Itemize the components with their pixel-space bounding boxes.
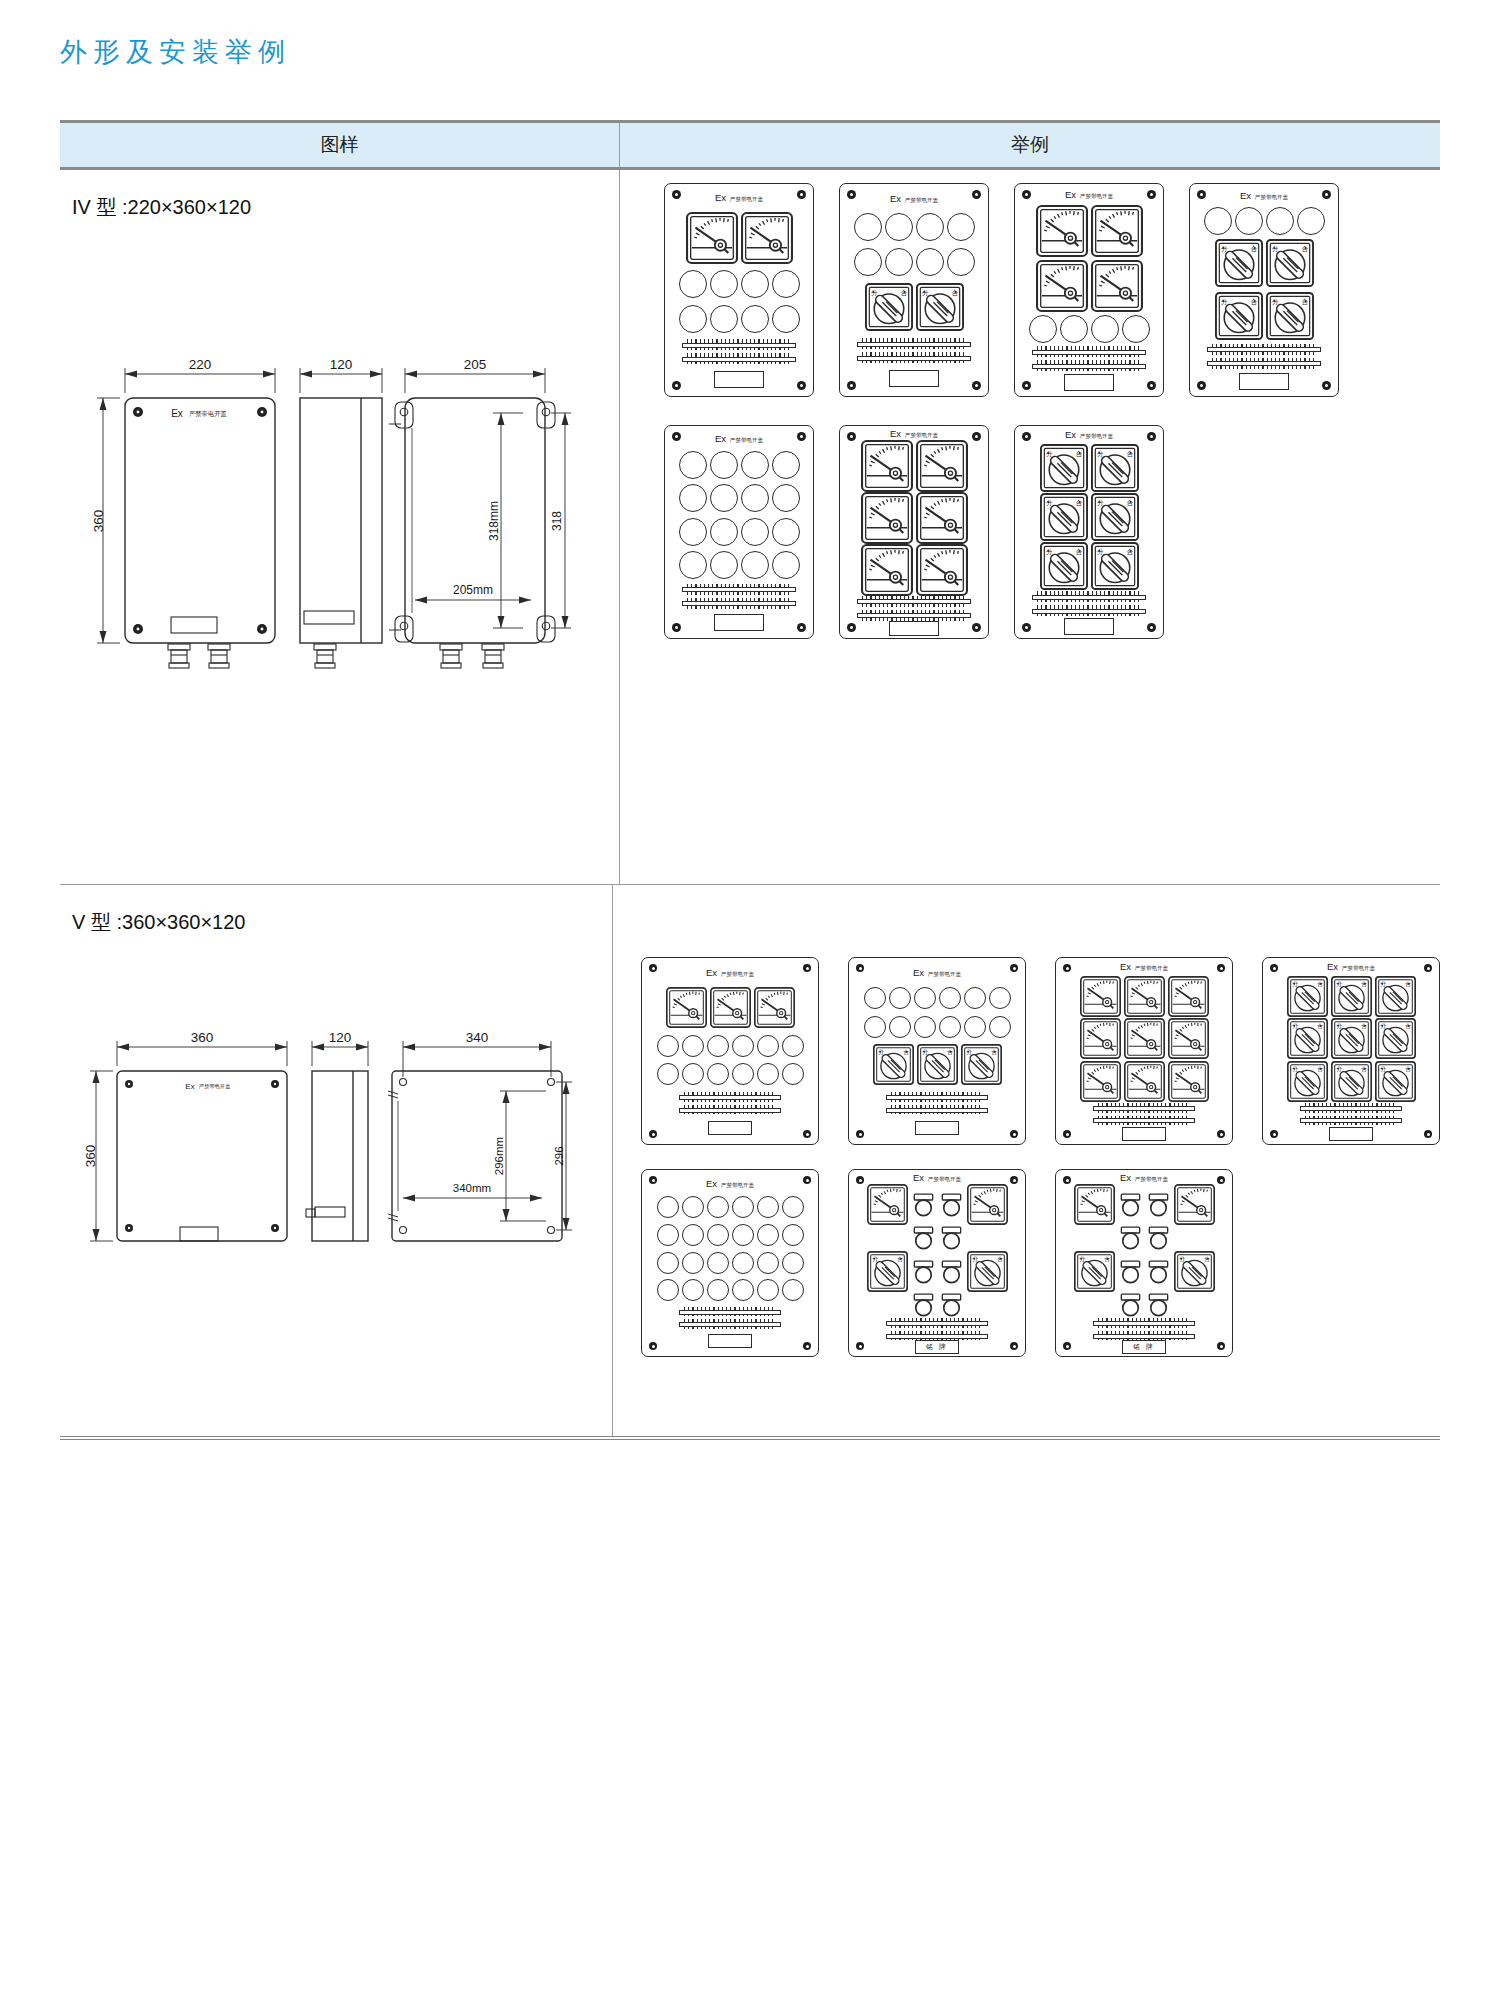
nameplate <box>1239 373 1289 390</box>
screw-icon <box>856 1342 864 1350</box>
example-panel: Ex严禁带电开盖 <box>664 183 814 397</box>
nameplate: 铭 牌 <box>915 1340 959 1354</box>
pushbutton-hole <box>964 1016 986 1038</box>
ex-mark: Ex <box>1240 190 1251 201</box>
ex-mark: Ex <box>1120 1172 1131 1183</box>
meter-icon <box>916 440 968 492</box>
screw-icon <box>1217 1176 1225 1184</box>
component-row <box>657 1279 804 1301</box>
pushbutton-hole <box>757 1279 779 1301</box>
component-row: 分合分合 <box>1215 239 1314 287</box>
component-row: 分合分合 <box>1040 444 1139 492</box>
screw-icon <box>972 190 981 199</box>
pushbutton-hole <box>939 1016 961 1038</box>
rotary-switch-icon: 分合 <box>1266 292 1314 340</box>
nameplate <box>714 371 764 388</box>
svg-text:合: 合 <box>903 1050 909 1057</box>
example-cell-v: Ex严禁带电开盖Ex严禁带电开盖分合分合分合Ex严禁带电开盖Ex严禁带电开盖分合… <box>613 884 1440 1436</box>
pushbutton-hole <box>772 551 800 579</box>
screw-icon <box>1147 381 1156 390</box>
meter-icon <box>1074 1184 1115 1225</box>
screw-icon <box>1322 190 1331 199</box>
component-row <box>679 305 800 333</box>
screw-icon <box>1063 1342 1071 1350</box>
svg-text:合: 合 <box>1075 499 1082 507</box>
nameplate <box>714 614 764 631</box>
example-panel: Ex严禁带电开盖 <box>641 1169 819 1357</box>
example-panel: Ex严禁带电开盖分合分合 <box>839 183 989 397</box>
terminal-block <box>891 1092 983 1114</box>
rotary-switch-icon: 分合 <box>1040 444 1088 492</box>
component-row <box>1080 976 1209 1017</box>
svg-text:分: 分 <box>1380 1024 1386 1030</box>
component-row <box>1036 205 1143 257</box>
meter-icon <box>1168 1018 1209 1059</box>
cable-glands <box>440 644 504 668</box>
rotary-switch-icon: 分合 <box>1091 444 1139 492</box>
component-row <box>679 270 800 298</box>
warning-text: 严禁带电开盖 <box>721 1182 754 1189</box>
screw-icon <box>972 381 981 390</box>
terminal-block <box>687 584 791 609</box>
example-panel: Ex严禁带电开盖分合分合铭 牌 <box>848 1169 1026 1357</box>
panel-header: Ex严禁带电开盖 <box>1240 190 1288 203</box>
rotary-switch-icon: 分合 <box>1215 292 1263 340</box>
meter-icon <box>916 492 968 544</box>
screw-icon <box>1424 1130 1432 1138</box>
pushbutton-hole <box>732 1252 754 1274</box>
example-cell-iv: Ex严禁带电开盖Ex严禁带电开盖分合分合Ex严禁带电开盖Ex严禁带电开盖分合分合… <box>620 170 1440 884</box>
example-panels-area-iv: Ex严禁带电开盖Ex严禁带电开盖分合分合Ex严禁带电开盖Ex严禁带电开盖分合分合… <box>620 170 1440 639</box>
meter-icon <box>1124 1018 1165 1059</box>
pushbutton-hole <box>757 1196 779 1218</box>
example-panel: Ex严禁带电开盖 <box>664 425 814 639</box>
svg-text:合: 合 <box>1301 298 1308 306</box>
dimension-labels: 220 120 205 360 318mm 318 205mm <box>91 357 564 597</box>
pushbutton-hole <box>757 1224 779 1246</box>
pushbutton-hole <box>1235 207 1263 235</box>
svg-text:合: 合 <box>1317 1066 1323 1073</box>
pushbutton-hole <box>947 248 975 276</box>
component-row: 分合分合 <box>1074 1251 1215 1292</box>
screw-icon <box>797 623 806 632</box>
panel-header: Ex严禁带电开盖 <box>890 428 938 440</box>
pushbutton-hole <box>707 1252 729 1274</box>
screw-icon <box>649 1342 657 1350</box>
screw-icon <box>803 1342 811 1350</box>
pushbutton-hole <box>679 451 707 479</box>
pushbutton-hole <box>732 1035 754 1057</box>
terminal-block <box>684 1092 776 1114</box>
rotary-switch-icon: 分合 <box>1331 1018 1372 1059</box>
dim-rear-inner-width: 205mm <box>453 583 493 597</box>
rotary-switch-icon: 分合 <box>1375 1061 1416 1102</box>
screw-icon <box>972 623 981 632</box>
screw-icon <box>1147 623 1156 632</box>
screw-icon <box>672 381 681 390</box>
pushbutton-hole <box>964 987 986 1009</box>
terminal-block <box>1212 344 1316 369</box>
meter-icon <box>1036 205 1088 257</box>
screw-icon <box>803 1130 811 1138</box>
pushbutton-hole <box>782 1063 804 1085</box>
svg-text:分: 分 <box>1336 1024 1342 1030</box>
svg-text:合: 合 <box>997 1257 1003 1264</box>
pushbutton-hole <box>741 451 769 479</box>
meter-icon <box>1091 205 1143 257</box>
svg-text:分: 分 <box>1336 1066 1342 1072</box>
v-dimension-drawing: 360 120 340 360 296mm 296 340mm Ex 严禁带电开… <box>72 1011 577 1256</box>
terminal-block <box>687 339 791 364</box>
component-row <box>657 1063 804 1085</box>
rotary-switch-icon: 分合 <box>1040 493 1088 541</box>
panel-header: Ex严禁带电开盖 <box>706 1178 754 1191</box>
component-row <box>854 248 975 276</box>
component-row: 分合分合分合 <box>873 1044 1002 1085</box>
nameplate <box>889 370 939 387</box>
component-row <box>657 1252 804 1274</box>
component-row: 分合分合分合 <box>1287 1061 1416 1102</box>
nameplate <box>889 621 939 636</box>
screw-icon <box>649 1176 657 1184</box>
pushbutton-hole <box>889 1016 911 1038</box>
screw-icon <box>672 190 681 199</box>
terminal-block <box>891 1318 983 1340</box>
warning-text: 严禁带电开盖 <box>1080 433 1113 440</box>
front-marking: Ex 严禁带电开盖 <box>171 408 227 419</box>
rotary-switch-icon: 分合 <box>1287 976 1328 1017</box>
screw-icon <box>847 623 856 632</box>
catalog-page: 外形及安装举例 图样 举例 IV 型 :220×360×120 <box>0 0 1500 1989</box>
screw-icon <box>847 381 856 390</box>
screw-icon <box>1197 190 1206 199</box>
screw-icon <box>1063 1176 1071 1184</box>
meter-icon <box>1080 1061 1121 1102</box>
meter-icon <box>686 212 738 264</box>
screw-icon <box>797 381 806 390</box>
svg-text:合: 合 <box>1204 1257 1210 1264</box>
pushbutton-hole <box>1029 315 1057 343</box>
pushbutton-hole <box>707 1063 729 1085</box>
pushbutton-hole <box>854 213 882 241</box>
screw-icon <box>847 190 856 199</box>
table-row-v: V 型 :360×360×120 <box>60 884 1440 1436</box>
panel-header: Ex严禁带电开盖 <box>1120 961 1168 974</box>
pushbutton-hole <box>710 551 738 579</box>
ex-mark: Ex <box>1065 429 1076 440</box>
nameplate <box>708 1334 752 1348</box>
ex-mark: Ex <box>715 433 726 444</box>
component-row <box>679 451 800 479</box>
rotary-switch-icon: 分合 <box>865 283 913 331</box>
svg-text:分: 分 <box>871 289 878 296</box>
component-row <box>666 987 795 1028</box>
pushbutton-hole <box>710 484 738 512</box>
screw-icon <box>672 623 681 632</box>
component-row: 分合分合 <box>1215 292 1314 340</box>
pattern-cell-iv: IV 型 :220×360×120 <box>60 170 620 884</box>
screw-icon <box>797 432 806 441</box>
table-header-row: 图样 举例 <box>60 120 1440 170</box>
svg-text:分: 分 <box>922 289 929 296</box>
ex-mark: Ex <box>185 1082 194 1091</box>
side-view <box>300 398 382 668</box>
svg-text:分: 分 <box>1046 450 1053 457</box>
svg-text:合: 合 <box>951 289 958 297</box>
warning-text: 严禁带电开盖 <box>905 432 938 439</box>
rear-view <box>389 398 555 668</box>
pushbutton-hole <box>707 1035 729 1057</box>
indicator-lamp-icon <box>1146 1292 1171 1318</box>
rotary-switch-icon: 分合 <box>1074 1251 1115 1292</box>
pushbutton-hole <box>864 987 886 1009</box>
meter-icon <box>666 987 707 1028</box>
component-row <box>1118 1292 1171 1318</box>
rotary-switch-icon: 分合 <box>1266 239 1314 287</box>
dim-rear-outer-height: 296 <box>553 1146 565 1165</box>
meter-icon <box>1124 1061 1165 1102</box>
rotary-switch-icon: 分合 <box>916 283 964 331</box>
rotary-switch-icon: 分合 <box>1287 1018 1328 1059</box>
svg-text:分: 分 <box>966 1050 972 1056</box>
pushbutton-hole <box>679 305 707 333</box>
screw-icon <box>1010 1342 1018 1350</box>
component-row <box>679 518 800 546</box>
pushbutton-hole <box>707 1196 729 1218</box>
screw-icon <box>1022 381 1031 390</box>
svg-text:分: 分 <box>1221 245 1228 252</box>
ex-mark: Ex <box>715 192 726 203</box>
pushbutton-hole <box>772 484 800 512</box>
front-view <box>117 1071 287 1241</box>
nameplate: 铭 牌 <box>1122 1340 1166 1354</box>
svg-text:合: 合 <box>900 289 907 297</box>
svg-text:合: 合 <box>1075 548 1082 556</box>
rotary-switch-icon: 分合 <box>1174 1251 1215 1292</box>
dim-front-height: 360 <box>83 1145 98 1168</box>
dim-side-width: 120 <box>329 1030 352 1045</box>
svg-text:合: 合 <box>1301 245 1308 253</box>
warning-text: 严禁带电开盖 <box>721 971 754 978</box>
terminal-block <box>1098 1318 1190 1340</box>
nameplate <box>915 1121 959 1135</box>
mounting-brackets <box>389 402 555 642</box>
svg-text:分: 分 <box>1272 298 1279 305</box>
pushbutton-hole <box>782 1252 804 1274</box>
terminal-block <box>1305 1103 1397 1125</box>
nameplate <box>1329 1127 1373 1141</box>
indicator-lamp-icon <box>911 1225 936 1251</box>
column-header-example: 举例 <box>620 123 1440 167</box>
screw-icon <box>856 1130 864 1138</box>
example-panel: Ex严禁带电开盖 <box>641 957 819 1145</box>
meter-icon <box>1091 260 1143 312</box>
screw-icon <box>1063 964 1071 972</box>
pushbutton-hole <box>885 213 913 241</box>
svg-text:分: 分 <box>1380 1066 1386 1072</box>
svg-text:分: 分 <box>1272 245 1279 252</box>
rotary-switch-icon: 分合 <box>1215 239 1263 287</box>
indicator-lamp-icon <box>1146 1192 1171 1218</box>
mounting-holes <box>400 1079 555 1234</box>
rotary-switch-icon: 分合 <box>1091 493 1139 541</box>
pushbutton-hole <box>1122 315 1150 343</box>
svg-text:合: 合 <box>1075 450 1082 458</box>
pushbutton-hole <box>1266 207 1294 235</box>
table-row-iv: IV 型 :220×360×120 <box>60 170 1440 884</box>
warning-text: 严禁带电开盖 <box>1135 1176 1168 1183</box>
svg-text:合: 合 <box>1317 1024 1323 1031</box>
warning-text: 严禁带电开盖 <box>1255 194 1288 201</box>
component-row <box>854 213 975 241</box>
pushbutton-hole <box>679 270 707 298</box>
rotary-switch-icon: 分合 <box>1040 542 1088 590</box>
component-row <box>911 1292 964 1318</box>
panel-group: Ex严禁带电开盖Ex严禁带电开盖Ex严禁带电开盖分合分合分合分合分合分合 <box>664 425 1440 639</box>
pushbutton-hole <box>947 213 975 241</box>
screw-icon <box>1022 623 1031 632</box>
svg-text:合: 合 <box>1361 1024 1367 1031</box>
panel-header: Ex严禁带电开盖 <box>1065 429 1113 442</box>
component-row: 分合分合 <box>865 283 964 331</box>
component-row <box>911 1225 964 1251</box>
svg-text:合: 合 <box>1250 298 1257 306</box>
dim-rear-outer-height: 318 <box>550 511 564 531</box>
meter-icon <box>1174 1184 1215 1225</box>
svg-text:分: 分 <box>922 1050 928 1056</box>
svg-text:分: 分 <box>1380 981 1386 987</box>
component-row <box>657 1224 804 1246</box>
pushbutton-hole <box>782 1196 804 1218</box>
svg-text:合: 合 <box>1361 981 1367 988</box>
pushbutton-hole <box>772 305 800 333</box>
rotary-switch-icon: 分合 <box>1375 976 1416 1017</box>
indicator-lamp-icon <box>1146 1259 1171 1285</box>
pushbutton-hole <box>757 1063 779 1085</box>
nameplate <box>180 1227 218 1241</box>
screw-icon <box>1147 432 1156 441</box>
pushbutton-hole <box>741 551 769 579</box>
dim-rear-width: 205 <box>464 357 487 372</box>
pushbutton-hole <box>741 484 769 512</box>
svg-text:合: 合 <box>1104 1257 1110 1264</box>
meter-icon <box>861 544 913 596</box>
indicator-lamp-icon <box>1118 1259 1143 1285</box>
rotary-switch-icon: 分合 <box>1287 1061 1328 1102</box>
pushbutton-hole <box>989 987 1011 1009</box>
screw-icon <box>1270 964 1278 972</box>
indicator-lamp-icon <box>1146 1225 1171 1251</box>
pushbutton-hole <box>854 248 882 276</box>
meter-icon <box>861 440 913 492</box>
pushbutton-hole <box>657 1063 679 1085</box>
warning-text: 严禁带电开盖 <box>1135 965 1168 972</box>
meter-icon <box>861 492 913 544</box>
warning-text: 严禁带电开盖 <box>1080 193 1113 200</box>
component-row <box>864 987 1011 1009</box>
panel-group: Ex严禁带电开盖Ex严禁带电开盖分合分合铭 牌Ex严禁带电开盖分合分合铭 牌 <box>641 1169 1440 1357</box>
screw-icon <box>1010 1130 1018 1138</box>
nameplate <box>1064 618 1114 635</box>
indicator-lamp-icon <box>911 1192 936 1218</box>
ex-mark: Ex <box>890 428 901 439</box>
warning-text: 严禁带电开盖 <box>928 971 961 978</box>
screw-icon <box>803 964 811 972</box>
example-panel: Ex严禁带电开盖分合分合分合分合分合分合分合分合分合 <box>1262 957 1440 1145</box>
component-row: 分合分合分合 <box>1287 976 1416 1017</box>
pushbutton-hole <box>657 1279 679 1301</box>
svg-text:合: 合 <box>1317 981 1323 988</box>
component-row <box>861 440 968 492</box>
component-row <box>679 484 800 512</box>
panel-header: Ex严禁带电开盖 <box>1120 1172 1168 1184</box>
panel-header: Ex严禁带电开盖 <box>1065 189 1113 202</box>
page-title: 外形及安装举例 <box>60 34 291 70</box>
pushbutton-hole <box>772 518 800 546</box>
pushbutton-hole <box>782 1224 804 1246</box>
nameplate <box>1064 374 1114 391</box>
component-row <box>861 492 968 544</box>
rotary-switch-icon: 分合 <box>1375 1018 1416 1059</box>
component-row <box>679 551 800 579</box>
pushbutton-hole <box>710 451 738 479</box>
component-row <box>657 1035 804 1057</box>
warning-text: 严禁带电开盖 <box>905 197 938 204</box>
terminal-block <box>1098 1103 1190 1125</box>
side-view <box>306 1071 368 1241</box>
component-row: 分合分合 <box>1040 493 1139 541</box>
component-row <box>1204 207 1325 235</box>
example-panel: Ex严禁带电开盖分合分合分合 <box>848 957 1026 1145</box>
svg-text:分: 分 <box>972 1257 978 1263</box>
spec-table: 图样 举例 IV 型 :220×360×120 <box>60 120 1440 1440</box>
svg-text:分: 分 <box>1079 1257 1085 1263</box>
iv-dimension-drawing: 220 120 205 360 318mm 318 205mm Ex 严禁带电开… <box>75 328 580 678</box>
pushbutton-hole <box>732 1063 754 1085</box>
screw-icon <box>856 1176 864 1184</box>
component-row <box>1118 1225 1171 1251</box>
screw-icon <box>672 432 681 441</box>
example-panel: Ex严禁带电开盖 <box>1055 957 1233 1145</box>
cover-screws <box>125 1080 279 1232</box>
dim-rear-inner-width: 340mm <box>453 1182 491 1194</box>
pushbutton-hole <box>657 1224 679 1246</box>
pushbutton-hole <box>657 1196 679 1218</box>
nameplate <box>171 617 217 633</box>
screw-icon <box>797 190 806 199</box>
component-row <box>861 544 968 596</box>
pushbutton-hole <box>710 518 738 546</box>
pushbutton-hole <box>707 1224 729 1246</box>
example-panel: Ex严禁带电开盖分合分合分合分合分合分合 <box>1014 425 1164 639</box>
pushbutton-hole <box>679 551 707 579</box>
pushbutton-hole <box>682 1063 704 1085</box>
pushbutton-hole <box>710 270 738 298</box>
pushbutton-hole <box>682 1224 704 1246</box>
dim-front-height: 360 <box>91 510 106 533</box>
svg-text:合: 合 <box>1126 499 1133 507</box>
svg-text:合: 合 <box>991 1050 997 1057</box>
indicator-lamp-icon <box>1118 1225 1143 1251</box>
example-panel: Ex严禁带电开盖分合分合铭 牌 <box>1055 1169 1233 1357</box>
dim-rear-inner-height: 296mm <box>493 1137 505 1175</box>
mounting-hooks <box>388 1091 398 1221</box>
pushbutton-hole <box>757 1252 779 1274</box>
rotary-switch-icon: 分合 <box>867 1251 908 1292</box>
pushbutton-hole <box>916 248 944 276</box>
warning-text: 严禁带电开盖 <box>1342 965 1375 972</box>
svg-text:分: 分 <box>1221 298 1228 305</box>
